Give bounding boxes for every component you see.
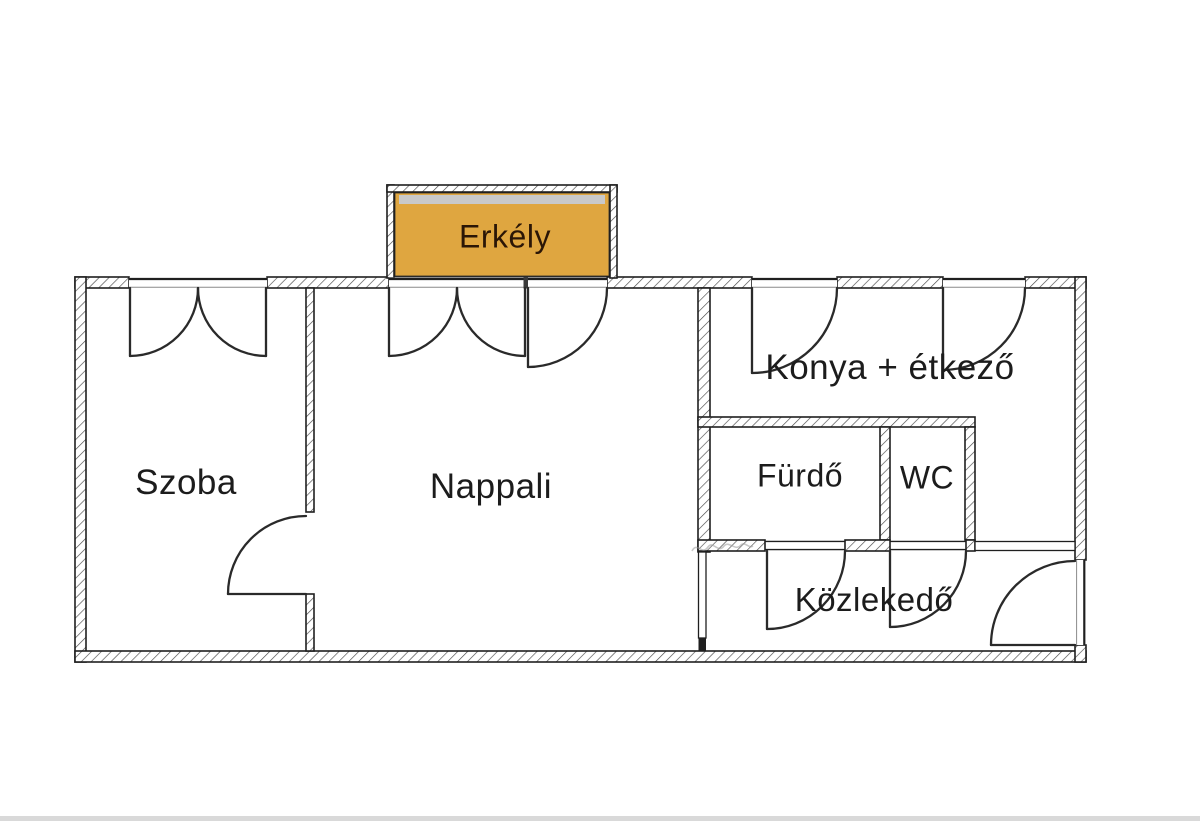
floorplan-image: Erkély Szoba Nappali Konya + étkező Fürd… <box>0 0 1200 821</box>
door-arc <box>389 288 457 356</box>
passage-living-hallway <box>699 552 707 638</box>
wall-balcony-top <box>387 185 617 192</box>
door-jamb <box>524 277 529 289</box>
room-label-kitchen-dining: Konya + étkező <box>765 348 1014 388</box>
room-label-living-room: Nappali <box>430 467 552 507</box>
wall-bath-bottom-c <box>966 540 975 551</box>
door-arc <box>228 516 306 594</box>
balcony-threshold-strip <box>399 195 605 204</box>
door-arc <box>991 561 1075 645</box>
wall-bath-top <box>698 417 975 427</box>
wall-right-outer-bottom <box>1075 645 1086 662</box>
wall-stub <box>699 638 707 651</box>
wall-bedroom-living-bottom <box>306 594 314 651</box>
wall-left-outer <box>75 277 86 662</box>
wall-wc-right <box>965 427 975 540</box>
wall-balcony-left <box>387 185 394 278</box>
bottom-edge-bar <box>0 816 1200 821</box>
wall-bath-bottom-b <box>845 540 890 551</box>
room-label-bathroom: Fürdő <box>757 458 843 495</box>
wall-bedroom-living-top <box>306 288 314 512</box>
wall-segment <box>267 277 389 288</box>
room-label-bedroom: Szoba <box>135 463 237 503</box>
door-arc <box>457 288 525 356</box>
wall-bath-wc-divider <box>880 427 890 540</box>
floorplan-svg <box>0 0 1200 821</box>
wall-right-outer-top <box>1075 277 1086 560</box>
door-arc <box>198 288 266 356</box>
wall-segment <box>607 277 752 288</box>
door-arc <box>528 288 607 367</box>
wall-bottom-outer <box>75 651 1086 662</box>
room-label-balcony: Erkély <box>459 219 551 256</box>
door-arc <box>130 288 198 356</box>
room-label-toilet: WC <box>900 460 954 497</box>
room-label-hallway: Közlekedő <box>795 581 954 619</box>
wall-balcony-right <box>610 185 617 278</box>
wall-segment <box>837 277 943 288</box>
passage-kitchen-hallway <box>975 542 1075 551</box>
